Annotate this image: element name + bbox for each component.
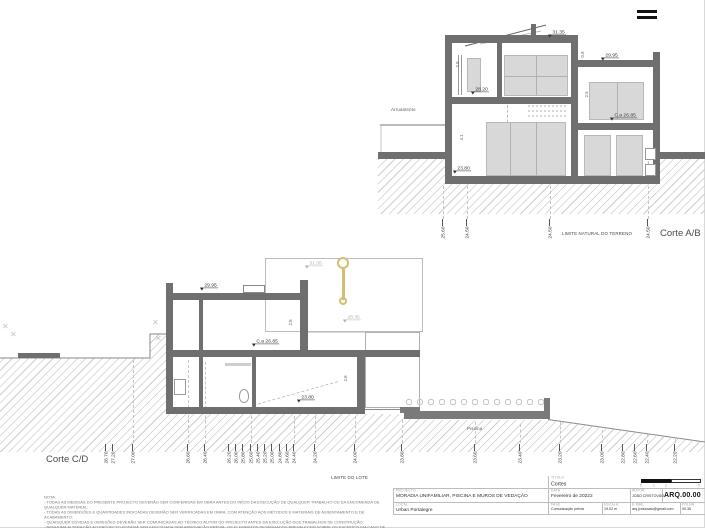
scale-label: ESCALA (604, 503, 618, 506)
lamp-top-ring (337, 257, 349, 269)
glazing-mullion (505, 76, 567, 77)
level-label-roof-back-cd: 31.35 (305, 260, 323, 266)
section-title-cd: Corte C/D (46, 454, 88, 465)
date-label: DATA (551, 489, 560, 492)
lamp-stem (342, 269, 345, 300)
elevation-value: 24.00 (352, 450, 357, 464)
neighbour-ground-structure (660, 152, 705, 159)
dashed-leader-line (560, 422, 561, 443)
parapet-wall-cd (300, 280, 308, 357)
garden-wall (18, 353, 60, 358)
level-label-wing-mid-ab: C.a 26.85 (610, 112, 637, 118)
location-value: Urban Portalegre (396, 507, 433, 512)
wing-floor-slab (578, 123, 653, 130)
elevation-value: 23.40 (517, 450, 522, 464)
rooftop-box (243, 285, 265, 293)
sheet-title-label: TÍTULO (551, 476, 564, 479)
elevation-value: 24.50 (547, 225, 552, 239)
dim-label: 2.8 (455, 61, 460, 67)
shelf-box (645, 148, 656, 160)
scale-bar-number: 1 (653, 484, 655, 487)
dashed-leader-line (550, 186, 551, 219)
street-label: Arruamento (391, 107, 416, 112)
drawing-number: ARQ.00.00 (664, 492, 701, 499)
elevation-tick: 24.00 (343, 444, 367, 476)
dashed-leader-line (520, 424, 521, 443)
architectural-sections-sheet: Arruamento 31.35 29.95 28.20 C.a 26.85 2… (0, 0, 705, 528)
terrain-line-right (548, 420, 705, 443)
dashed-leader-line (467, 186, 468, 219)
floor-slab-upper (452, 97, 571, 104)
plant-symbol: ✕ (2, 322, 9, 331)
email-value: arq.jcristovao@gmail.com (632, 507, 673, 511)
elevation-tick: 23.80 (390, 444, 414, 476)
terrain-limit-label: LIMITE NATURAL DO TERRENO (562, 231, 632, 236)
dashed-leader-line (602, 430, 603, 443)
elevation-tick: 22.40 (635, 444, 659, 476)
dashed-leader-line (133, 360, 134, 443)
cabinet-box (174, 379, 186, 395)
elevation-value: 23.80 (399, 450, 404, 464)
hedge-planting (404, 396, 546, 408)
mid-slab-cd (166, 350, 420, 357)
level-label-upper-floor-ab: 28.20 (471, 86, 489, 92)
wing-roof-slab (578, 60, 655, 67)
scale-bar-number: 2 (665, 484, 667, 487)
general-notes: NOTA: - TODAS AS MEDIDAS DO PRESENTE PRO… (44, 495, 394, 528)
note-line: - TODAS AS MEDIDAS DO PRESENTE PROJECTO … (44, 500, 394, 510)
dashed-leader-line (205, 362, 206, 443)
elevation-tick: 23.60 (463, 444, 487, 476)
level-label-roof-ab: 31.35 (548, 29, 566, 35)
level-label-roof-cd: 29.95 (200, 282, 218, 288)
elevation-value: 23.00 (599, 450, 604, 464)
wing-glazing-lower (616, 135, 643, 176)
pool-shell (404, 411, 549, 419)
closet-line (461, 55, 462, 95)
level-label-ground-ab: 23.80 (453, 165, 471, 171)
elevation-value: 24.50 (645, 225, 650, 239)
dim-label: 0.8 (580, 51, 585, 57)
roof-slab (445, 35, 578, 43)
titleblock-line (393, 502, 705, 503)
dashed-leader-line (355, 416, 356, 443)
location-label: LOCAL (396, 503, 408, 506)
partition-wall (199, 300, 203, 350)
elevation-tick: 23.40 (508, 444, 532, 476)
note-line: - TODAS AS DIMENSÕES E QUANTIDADES INDIC… (44, 510, 394, 520)
plant-symbol: ✕ (10, 330, 17, 339)
elevation-tick: 23.20 (548, 444, 572, 476)
shelf-box (645, 164, 656, 176)
north-indicator-bar (637, 10, 657, 13)
glazing-mullion (536, 123, 537, 175)
dim-label: 2.5 (584, 91, 589, 97)
elevation-value: 25.60 (440, 225, 445, 239)
street-structure (378, 152, 447, 159)
elevation-tick: 24.20 (303, 444, 327, 476)
toilet-fixture (239, 389, 249, 403)
glazing-mullion (510, 123, 511, 175)
email-label: E-MAIL (632, 503, 644, 506)
titleblock-line (393, 488, 705, 489)
dashed-leader-line (188, 360, 189, 443)
elevation-value: 24.50 (464, 225, 469, 239)
sheet-label: FOLHA (682, 503, 694, 506)
dashed-leader-line (294, 416, 295, 443)
counter-line (225, 363, 251, 366)
ground-floor-slab-cd (166, 407, 365, 414)
dashed-leader-line (443, 186, 444, 219)
wing-glazing-lower (584, 135, 611, 176)
elevation-tick: 27.00 (121, 444, 145, 476)
elevation-value: 26.60 (185, 450, 190, 464)
partition-wall (497, 43, 502, 97)
elevation-tick: 24.50 (538, 219, 562, 251)
wall-segment-left-cd (166, 283, 173, 412)
elevation-value: 27.00 (130, 450, 135, 464)
graphic-scale-bar (671, 479, 701, 483)
section-title-ab: Corte A/B (660, 228, 701, 239)
plant-symbol: ✕ (152, 318, 159, 327)
roof-slab-cd (166, 293, 307, 300)
dashed-leader-line (647, 434, 648, 443)
elevation-tick: 22.20 (663, 444, 687, 476)
glazing-panel (486, 122, 566, 176)
dashed-leader-line (315, 416, 316, 443)
elevation-tick: 24.50 (636, 219, 660, 251)
dashed-leader-line (675, 437, 676, 443)
wall-segment-right-cd (357, 357, 365, 414)
scale-bar-number: 0 (640, 484, 642, 487)
titleblock-line (630, 488, 631, 514)
dim-label: 2.8 (343, 375, 348, 381)
date-value: Fevereiro de 20222 (551, 493, 593, 498)
dashed-leader-line (402, 420, 403, 443)
level-label-ground-cd: 23.80 (297, 394, 315, 400)
level-label-mid-cd: C.a 26.85 (252, 338, 279, 344)
partition-wall (199, 357, 203, 407)
elevation-value: 22.20 (672, 450, 677, 464)
elevation-value: 24.20 (312, 450, 317, 464)
partition-wall (252, 357, 256, 407)
scale-value: 19.02 m (604, 507, 617, 511)
dashed-leader-line (251, 416, 252, 443)
elevation-value: 26.40 (202, 450, 207, 464)
dim-label: 2.8 (288, 319, 293, 325)
sheet-title-value: Cortes (551, 481, 566, 487)
elevation-value: 24.40 (291, 450, 296, 464)
elevation-value: 23.20 (557, 450, 562, 464)
dim-label: 4.1 (459, 134, 464, 140)
author-value: JOÃO CRISTÓVÃO (632, 494, 664, 498)
level-label-terrace-back-cd: 28.35 (343, 314, 361, 320)
pool-label: Piscina (467, 426, 482, 431)
plant-symbol: ✕ (155, 334, 162, 343)
elevation-tick: 25.60 (431, 219, 455, 251)
pool-wall-post (544, 398, 550, 419)
phase-label: FASE (551, 503, 560, 506)
wall-segment-middle (571, 35, 578, 184)
scale-bar-number: 5 (698, 484, 700, 487)
elevation-value: 22.40 (644, 450, 649, 464)
level-label-wing-roof-ab: 29.95 (601, 52, 619, 58)
graphic-scale-bar (641, 479, 671, 483)
project-value: MORADIA UNIFAMILIAR, PISCINA E MUROS DE … (396, 493, 528, 498)
elevation-tick: 26.40 (193, 444, 217, 476)
elevation-value: 23.60 (472, 450, 477, 464)
wall-segment-left (445, 35, 452, 184)
titleblock-line (393, 514, 705, 515)
titleblock-line (548, 476, 549, 514)
sheet-value: 00.35 (682, 507, 691, 511)
elevation-tick: 24.50 (455, 219, 479, 251)
elevation-value: 27.20 (110, 450, 115, 464)
titleblock-line (602, 502, 603, 514)
phase-value: Comunicação prévia (551, 507, 584, 511)
titleblock-line (680, 502, 681, 514)
ground-floor-slab (445, 176, 660, 184)
project-label: PROJECTO (396, 489, 416, 492)
north-indicator-bar (637, 16, 657, 19)
chimney (531, 24, 536, 36)
lamp-bottom-ring (339, 297, 347, 305)
author-label: AUTOR (632, 489, 645, 492)
